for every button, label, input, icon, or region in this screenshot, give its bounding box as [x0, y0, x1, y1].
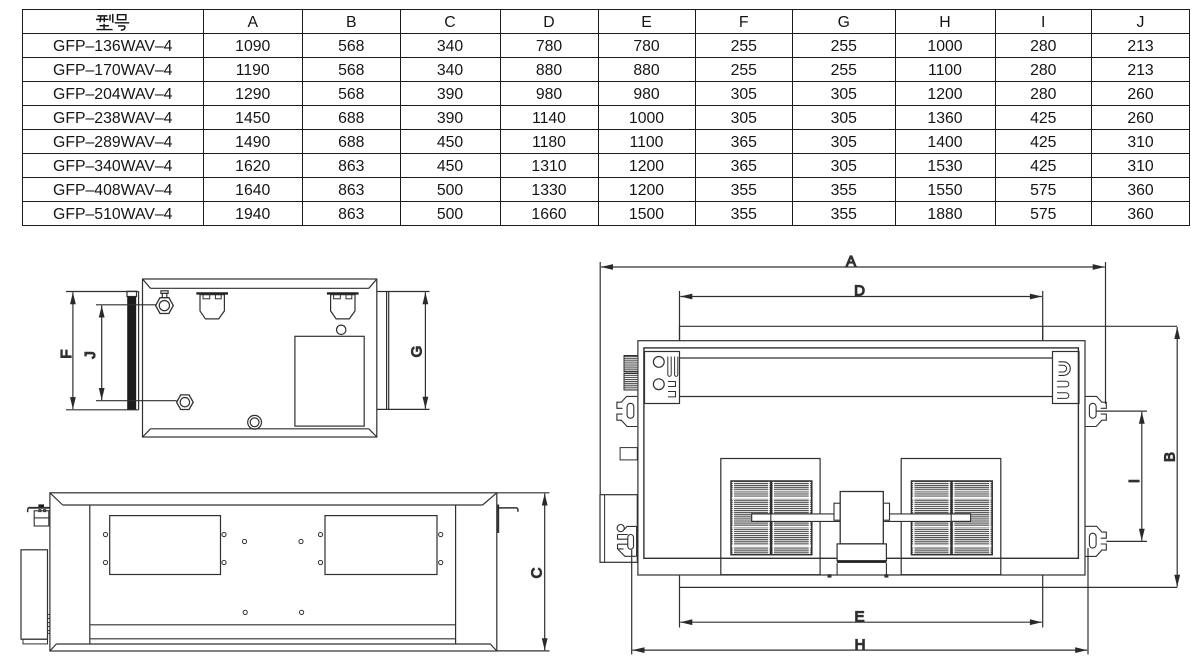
svg-text:A: A [846, 253, 856, 270]
svg-text:H: H [855, 636, 866, 653]
svg-text:G: G [409, 346, 426, 358]
svg-text:F: F [58, 349, 75, 358]
svg-text:I: I [1126, 479, 1143, 483]
svg-text:C: C [529, 567, 546, 578]
svg-text:D: D [854, 283, 865, 300]
svg-text:B: B [1161, 452, 1178, 462]
svg-text:J: J [82, 351, 99, 359]
svg-text:E: E [854, 608, 864, 625]
